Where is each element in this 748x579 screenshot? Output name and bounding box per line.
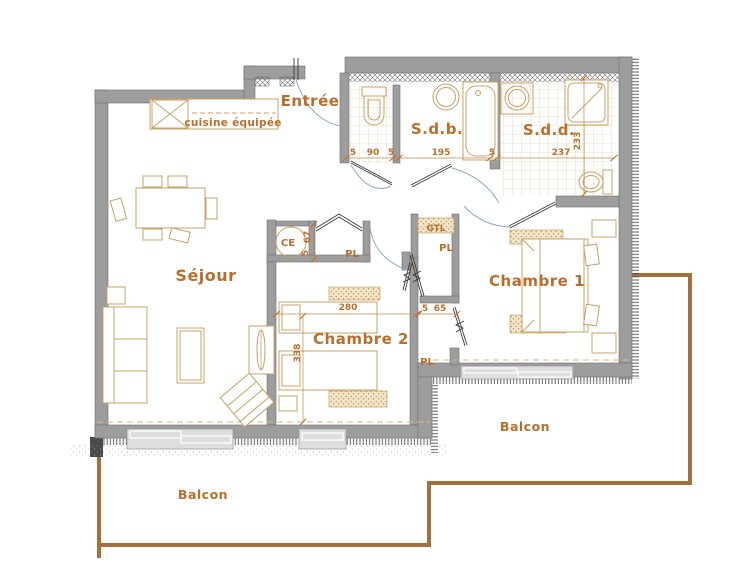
floor-plan: Entrée Séjour S.d.b. S.d.d. Chambre 1 Ch… xyxy=(0,0,748,579)
wall-entry-notch-h xyxy=(244,66,305,79)
dim-wc-right: 5 xyxy=(388,148,394,158)
wall-pl2-bottom xyxy=(420,296,459,303)
label-sdd: S.d.d. xyxy=(523,121,575,139)
stipple-band xyxy=(70,444,447,456)
chair xyxy=(206,198,217,219)
sdb-door-arc xyxy=(452,168,499,203)
label-entree: Entrée xyxy=(281,92,340,110)
label-chambre2: Chambre 2 xyxy=(313,330,409,348)
dim-ch2-height: 338 xyxy=(293,344,303,363)
window-chambre2 xyxy=(299,429,346,449)
label-chambre1: Chambre 1 xyxy=(489,272,585,290)
balcony-railing xyxy=(99,275,690,558)
wall-ch2-right xyxy=(410,258,418,425)
wall-wc-left xyxy=(340,73,349,163)
label-pl-hall: PL xyxy=(439,243,453,254)
dim-wc-left: 5 xyxy=(350,148,356,158)
wall-ch1-left-low xyxy=(450,348,459,365)
chair xyxy=(168,176,187,187)
tv-unit xyxy=(249,326,274,374)
window-sejour-large xyxy=(127,429,233,449)
coffee-table xyxy=(177,328,204,383)
shower xyxy=(565,80,608,125)
nightstand xyxy=(592,333,616,353)
label-pl-entree: PL xyxy=(345,249,359,260)
dim-pl2-left: 5 xyxy=(422,304,428,314)
dim-wc-width: 90 xyxy=(367,148,380,158)
chair xyxy=(143,176,162,187)
ladder-hatch-right xyxy=(632,57,639,379)
label-pl-chambre1: PL xyxy=(420,357,434,368)
side-table xyxy=(107,287,125,304)
dim-ch2-width: 280 xyxy=(339,303,358,313)
window-chambre1 xyxy=(461,366,573,379)
dim-pl2-width: 65 xyxy=(434,304,447,314)
sdd-door-leaf xyxy=(509,202,556,228)
wall-top-bath xyxy=(345,57,632,73)
label-gtl: GTL xyxy=(426,224,445,234)
sofa xyxy=(103,287,147,403)
label-kitchen: cuisine équipée xyxy=(184,117,281,129)
label-ce: CE xyxy=(281,238,295,249)
chair xyxy=(169,228,190,243)
pillow xyxy=(584,304,600,326)
chair xyxy=(110,198,126,221)
dim-sdd-width: 237 xyxy=(552,148,571,158)
label-sejour: Séjour xyxy=(175,266,236,285)
dim-sdb-width: 195 xyxy=(432,148,451,158)
pl1-folding-door xyxy=(316,214,362,231)
dim-ce-b: 67 xyxy=(303,231,313,244)
label-balcon-left: Balcon xyxy=(178,487,228,502)
sdb-door-leaf xyxy=(411,164,452,187)
wall-pl2-left xyxy=(411,214,418,260)
dim-ce-a: 5 xyxy=(301,250,311,256)
floor-plan-svg: Entrée Séjour S.d.b. S.d.d. Chambre 1 Ch… xyxy=(0,0,748,579)
sdd-door-arc xyxy=(464,206,510,227)
sdb-sink xyxy=(433,84,459,110)
chair xyxy=(143,229,162,240)
wall-right xyxy=(619,57,632,379)
dim-sdb-right: 5 xyxy=(489,148,495,158)
wc-door-leaf xyxy=(351,161,392,185)
label-balcon-right: Balcon xyxy=(500,419,550,434)
door-frame-block xyxy=(255,77,269,86)
wall-sdd-bottom xyxy=(556,196,619,207)
nightstand xyxy=(592,220,616,237)
pillow xyxy=(282,305,300,330)
dining-table xyxy=(110,176,217,243)
dim-sdd-height: 233 xyxy=(573,132,583,151)
nightstand xyxy=(279,396,297,411)
label-sdb: S.d.b. xyxy=(411,120,463,138)
pillow xyxy=(584,244,600,266)
wall-sejour-ch2 xyxy=(267,220,276,425)
door-frame-block xyxy=(280,77,294,86)
armchair xyxy=(220,373,274,427)
wc-door-arc xyxy=(351,165,391,188)
